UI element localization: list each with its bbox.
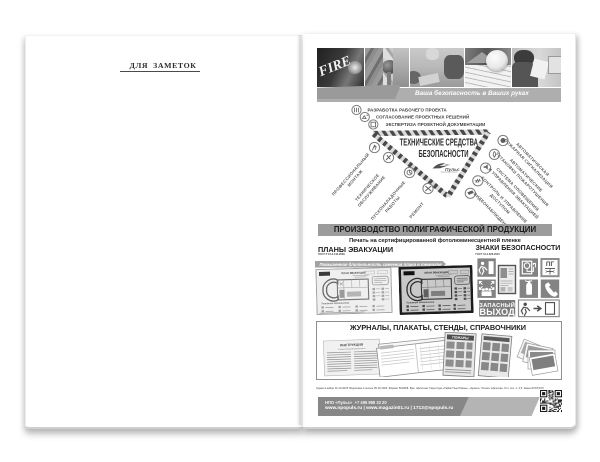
svg-text:ЭКСПЕРТИЗА ПРОЕКТНОЙ ДОКУМЕНТА: ЭКСПЕРТИЗА ПРОЕКТНОЙ ДОКУМЕНТАЦИИ bbox=[386, 122, 486, 127]
svg-text:РАЗРАБОТКА РАБОЧЕГО ПРОЕКТА: РАЗРАБОТКА РАБОЧЕГО ПРОЕКТА bbox=[368, 108, 448, 113]
svg-text:СОГЛАСОВАНИЕ ПРОЕКТНЫХ РЕШЕНИЙ: СОГЛАСОВАНИЕ ПРОЕКТНЫХ РЕШЕНИЙ bbox=[376, 115, 469, 120]
svg-text:РЕМОНТ: РЕМОНТ bbox=[408, 201, 425, 219]
svg-text:ИНСТРУКЦИЯ: ИНСТРУКЦИЯ bbox=[340, 343, 364, 348]
svg-text:ВЫХОД: ВЫХОД bbox=[480, 307, 516, 317]
svg-text:ПЛАН ЭВАКУАЦИИ: ПЛАН ЭВАКУАЦИИ bbox=[424, 270, 448, 275]
svg-text:НПО: НПО bbox=[446, 165, 451, 167]
svg-text:БЕЗОПАСНОСТИ: БЕЗОПАСНОСТИ bbox=[419, 147, 469, 159]
svg-text:ПГ: ПГ bbox=[546, 261, 555, 268]
svg-text:ПЛАН ЭВАКУАЦИИ: ПЛАН ЭВАКУАЦИИ bbox=[341, 270, 365, 275]
